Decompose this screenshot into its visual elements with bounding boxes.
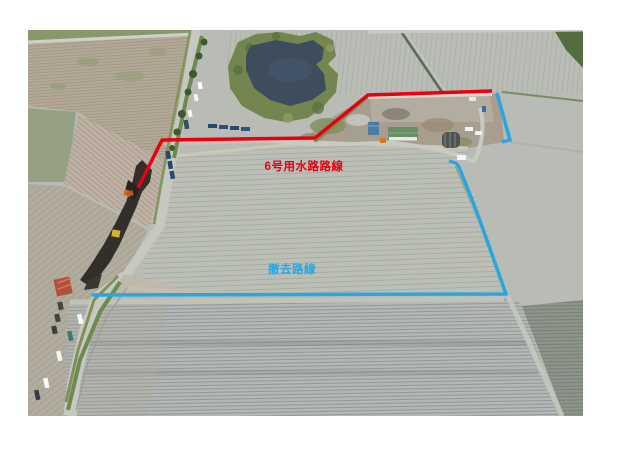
van-white [475,131,482,135]
truck-row [230,126,239,130]
vegetation-clump [312,102,324,114]
crop-patch [115,71,145,81]
page: 6号用水路路線 撤去路線 [0,0,640,452]
aerial-photo: 6号用水路路線 撤去路線 [28,30,583,416]
tree [174,129,181,136]
tree [169,145,175,151]
tree [185,89,192,96]
tree [201,39,208,46]
excavator-yellow [111,229,120,237]
vegetation-clump [233,65,243,75]
van-white [465,127,473,131]
tree [189,70,197,78]
tree [178,110,186,118]
blue-roof-shed [368,122,379,135]
road-top [368,30,583,32]
red-route-label: 6号用水路路線 [265,159,344,173]
car-blue [482,106,486,112]
dirt-patch [382,108,410,120]
van-white [469,97,476,101]
dirt-patch [422,118,454,132]
field-headland [70,299,504,302]
truck-row [219,125,228,129]
truck-row [208,124,217,128]
crop-patch [149,48,167,56]
van-white [457,155,466,160]
excavator-orange [380,138,386,143]
vegetation-clump [272,32,280,40]
aerial-photo-svg: 6号用水路路線 撤去路線 [28,30,583,416]
gravel-pile [346,114,370,126]
crop-patch [50,83,66,89]
blue-route-label: 撤去路線 [268,262,316,276]
vegetation-clump [326,44,334,52]
water-sheen [268,58,312,82]
building-wall [389,137,417,141]
crop-patch [77,58,99,66]
tree [196,53,203,60]
truck-row [241,127,250,131]
vegetation-clump [283,113,293,123]
